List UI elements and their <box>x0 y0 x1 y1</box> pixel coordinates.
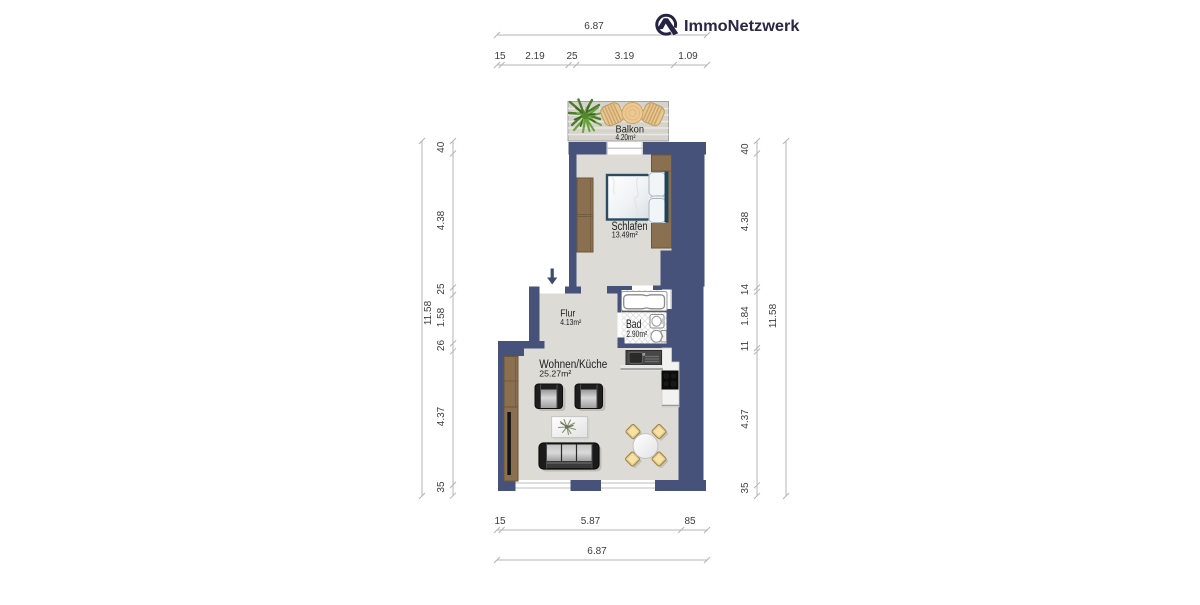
svg-text:40: 40 <box>436 141 447 153</box>
svg-text:ImmoNetzwerk: ImmoNetzwerk <box>684 18 800 35</box>
svg-text:4.13m²: 4.13m² <box>560 318 581 327</box>
svg-text:11.58: 11.58 <box>423 300 434 325</box>
svg-text:4.38: 4.38 <box>740 211 751 231</box>
svg-text:11: 11 <box>740 340 751 351</box>
svg-text:4.37: 4.37 <box>740 409 751 429</box>
svg-text:2.19: 2.19 <box>525 51 545 62</box>
svg-text:1.58: 1.58 <box>436 307 447 327</box>
svg-text:40: 40 <box>740 143 751 155</box>
svg-text:15: 15 <box>494 516 506 527</box>
svg-text:35: 35 <box>740 482 751 494</box>
svg-text:14: 14 <box>740 284 751 296</box>
svg-text:11.58: 11.58 <box>768 303 779 328</box>
svg-text:4.20m²: 4.20m² <box>616 133 636 142</box>
svg-text:6.87: 6.87 <box>584 21 604 32</box>
svg-text:35: 35 <box>436 481 447 493</box>
svg-text:25.27m²: 25.27m² <box>539 368 571 378</box>
svg-text:13.49m²: 13.49m² <box>612 230 638 240</box>
svg-text:25: 25 <box>566 51 578 62</box>
svg-text:5.87: 5.87 <box>581 516 601 527</box>
svg-text:3.19: 3.19 <box>615 51 635 62</box>
svg-text:26: 26 <box>436 340 447 352</box>
svg-text:4.38: 4.38 <box>436 210 447 230</box>
svg-text:85: 85 <box>684 516 696 527</box>
svg-text:1.09: 1.09 <box>678 51 698 62</box>
svg-text:25: 25 <box>436 283 447 295</box>
svg-text:4.37: 4.37 <box>436 406 447 426</box>
svg-text:1.84: 1.84 <box>740 306 751 326</box>
svg-text:15: 15 <box>494 51 506 62</box>
svg-text:6.87: 6.87 <box>587 546 607 557</box>
svg-text:2.90m²: 2.90m² <box>626 329 647 339</box>
